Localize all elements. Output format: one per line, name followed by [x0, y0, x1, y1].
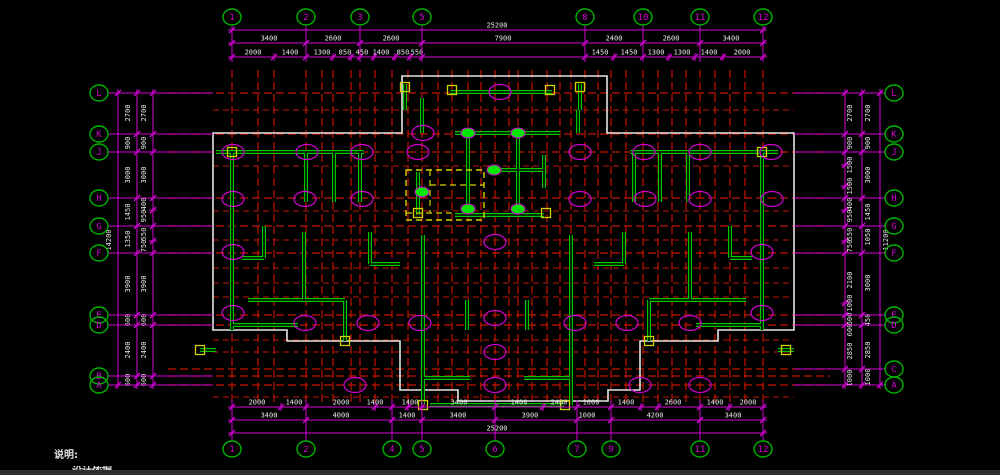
dim-text: 1450 — [621, 49, 638, 57]
dim-text-v: 950 — [846, 210, 854, 223]
green-column-dot — [487, 165, 501, 175]
grid-bubble-label: L — [891, 89, 896, 99]
dim-text: 450 — [356, 49, 369, 57]
dim-text-v: 1450 — [864, 204, 872, 221]
walls — [200, 84, 794, 405]
grid-bubble-label: J — [891, 148, 896, 158]
dim-text: 1450 — [592, 49, 609, 57]
dim-text: 2400 — [551, 399, 568, 407]
grid-bubble-label: K — [891, 130, 897, 140]
grid-bubble-label: F — [96, 249, 101, 259]
dim-text-v: 1350 — [124, 231, 132, 248]
dim-text: 1000 — [583, 399, 600, 407]
dim-text: 2400 — [606, 35, 623, 43]
grid-bubble-label: E — [891, 311, 896, 321]
grid-bubble-label: H — [891, 194, 896, 204]
dim-text-v: 550 — [846, 228, 854, 241]
dim-text-v: 1050 — [864, 229, 872, 246]
dim-text: 4000 — [333, 412, 350, 420]
dim-text-v: 600 — [846, 324, 854, 337]
dim-text-v: 900 — [846, 137, 854, 150]
dim-text: 2600 — [665, 399, 682, 407]
dim-text-v: 1500 — [846, 157, 854, 174]
column-detail-ellipse — [409, 316, 431, 331]
dim-text: 2000 — [245, 49, 262, 57]
column-detail-ellipse — [761, 192, 783, 207]
column-detail-ellipse — [616, 316, 638, 331]
dim-text-v: 2400 — [124, 342, 132, 359]
column-detail-ellipse — [569, 192, 591, 207]
dim-text: 1300 — [314, 49, 331, 57]
dim-text-v: 2700 — [846, 105, 854, 122]
dim-text-v: 400 — [140, 198, 148, 211]
dim-text: 3400 — [261, 412, 278, 420]
dim-text-v: 1450 — [124, 204, 132, 221]
grid-bubble-label: 7 — [574, 445, 579, 455]
column-detail-ellipse — [634, 192, 656, 207]
dim-text: 2600 — [383, 35, 400, 43]
dim-text-v: 3900 — [124, 276, 132, 293]
dim-text-v: 3000 — [124, 167, 132, 184]
dim-text: 1400 — [399, 412, 416, 420]
notes-title: 说明: — [54, 450, 78, 462]
green-column-dot — [461, 128, 475, 138]
grid-bubble-label: 1 — [229, 13, 234, 23]
dim-text: 1400 — [701, 49, 718, 57]
dim-text-v: 900 — [864, 137, 872, 150]
dim-text: 2000 — [249, 399, 266, 407]
dim-text: 3400 — [725, 412, 742, 420]
dim-text-v: 2700 — [140, 105, 148, 122]
dim-text: 25200 — [486, 22, 507, 30]
dim-text-v: 3000 — [140, 167, 148, 184]
dim-text-v: 1000 — [846, 295, 854, 312]
grid-bubble-label: E — [96, 311, 101, 321]
dim-text-v: 600 — [140, 314, 148, 327]
grid-bubble-label: C — [891, 365, 896, 375]
grid-bubble-label: 12 — [758, 445, 769, 455]
dim-text-v: 750 — [846, 240, 854, 253]
grid-bubble-label: 4 — [389, 445, 394, 455]
grid-bubble-label: 1 — [229, 445, 234, 455]
grid-bubble-label: 9 — [608, 445, 613, 455]
grid-bubble-label: 11 — [695, 445, 706, 455]
green-column-dot — [415, 187, 429, 197]
window-bottom-edge — [0, 470, 1000, 475]
dim-text: 850 — [397, 49, 410, 57]
grid-bubble-label: 5 — [419, 13, 424, 23]
grid-bubble-label: 5 — [419, 445, 424, 455]
grid-bubble-label: F — [891, 249, 896, 259]
grid-bubble-label: H — [96, 194, 101, 204]
dim-text: 2000 — [740, 399, 757, 407]
dim-text-v: 2700 — [864, 105, 872, 122]
grid-bubble-label: 3 — [357, 13, 362, 23]
dim-text-v: 3900 — [140, 276, 148, 293]
dim-text: 1400 — [367, 399, 384, 407]
grid-bubble-label: 2 — [303, 13, 308, 23]
dim-text-v: 3000 — [864, 167, 872, 184]
dim-text: 2000 — [333, 399, 350, 407]
dim-text: 3400 — [261, 35, 278, 43]
dim-text: 1000 — [579, 412, 596, 420]
dim-text-v: 750 — [140, 240, 148, 253]
grid-bubble-label: 12 — [758, 13, 769, 23]
dim-text: 1400 — [618, 399, 635, 407]
dim-text-v: 2850 — [864, 342, 872, 359]
green-column-dot — [461, 204, 475, 214]
green-column-dot — [511, 128, 525, 138]
grid-bubble-label: A — [891, 381, 897, 391]
dim-text: 1300 — [674, 49, 691, 57]
grid-bubble-label: D — [891, 321, 896, 331]
dim-text: 3400 — [450, 412, 467, 420]
dim-text-v: 950 — [140, 210, 148, 223]
dim-text: 1400 — [282, 49, 299, 57]
dim-text: 1400 — [402, 399, 419, 407]
dim-text: 3400 — [723, 35, 740, 43]
dim-text-v: 600 — [124, 314, 132, 327]
grid-bubble-label: 2 — [303, 445, 308, 455]
grid-bubble-label: L — [96, 89, 101, 99]
dim-text-v: 400 — [846, 198, 854, 211]
dim-text: 7900 — [495, 35, 512, 43]
dim-text: 1400 — [707, 399, 724, 407]
dim-text-v: 1000 — [846, 370, 854, 387]
grid-bubble-label: 8 — [582, 13, 587, 23]
grid-bubble-label: 11 — [695, 13, 706, 23]
column-detail-ellipse — [564, 316, 586, 331]
dim-text-v: 450 — [864, 314, 872, 327]
dim-text: 1400 — [511, 399, 528, 407]
dim-text: 550 — [411, 49, 424, 57]
dim-text: 1400 — [373, 49, 390, 57]
grid-bubble-label: 10 — [638, 13, 649, 23]
dim-text-v: 550 — [140, 228, 148, 241]
dim-text: 25200 — [486, 425, 507, 433]
dim-text: 2000 — [734, 49, 751, 57]
dim-text: 850 — [339, 49, 352, 57]
dim-text: 2600 — [325, 35, 342, 43]
grid-bubble-label: G — [96, 222, 101, 232]
cad-plan-svg: 2520034002600260079002400260034002000140… — [0, 0, 1000, 475]
dim-text: 3400 — [451, 399, 468, 407]
dim-text: 1400 — [286, 399, 303, 407]
dim-text-v: 3000 — [864, 275, 872, 292]
grid-bubble-label: 6 — [492, 445, 497, 455]
grid-bubble-label: J — [96, 148, 101, 158]
dim-text-v: 1500 — [846, 178, 854, 195]
dim-text-v: 1000 — [864, 369, 872, 386]
dim-text-v: 900 — [140, 137, 148, 150]
dim-text-v: 2700 — [124, 105, 132, 122]
dim-text-v: 900 — [124, 137, 132, 150]
grid-bubble-label: K — [96, 130, 102, 140]
dim-text: 3900 — [522, 412, 539, 420]
dim-text-v: 2100 — [846, 272, 854, 289]
green-column-dot — [511, 204, 525, 214]
dim-text: 4200 — [647, 412, 664, 420]
dim-text-v: 2850 — [846, 343, 854, 360]
grid-bubble-label: G — [891, 222, 896, 232]
grid-bubble-label: D — [96, 321, 101, 331]
grid-bubble-label: A — [96, 381, 102, 391]
cad-drawing-area[interactable]: 2520034002600260079002400260034002000140… — [0, 0, 1000, 475]
dim-text: 2600 — [663, 35, 680, 43]
dim-text-v: 2400 — [140, 342, 148, 359]
dim-text: 1300 — [648, 49, 665, 57]
